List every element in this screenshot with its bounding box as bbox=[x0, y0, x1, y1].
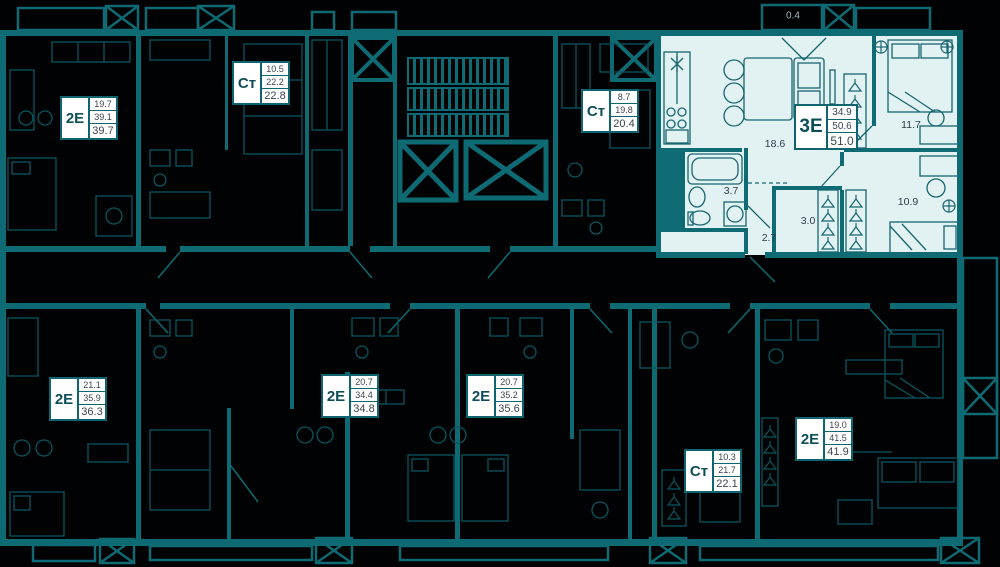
apartment-area-room: 20.7 bbox=[351, 376, 377, 389]
apartment-label-2e-top-left[interactable]: 2Е 19.7 39.1 39.7 bbox=[60, 96, 118, 140]
apartment-area-living: 22.2 bbox=[262, 76, 288, 89]
room-area-bedroom-2: 10.9 bbox=[898, 196, 918, 208]
room-area-kitchen-living: 18.6 bbox=[765, 138, 785, 150]
apartment-label-3e-highlighted[interactable]: 3Е 34.9 50.6 51.0 bbox=[794, 104, 858, 150]
apartment-area-room: 10.3 bbox=[714, 451, 740, 464]
apartment-area-room: 20.7 bbox=[496, 376, 522, 389]
apartment-area-total: 34.8 bbox=[351, 402, 377, 416]
apartment-area-total: 41.9 bbox=[825, 445, 851, 459]
room-area-balcony: 0.4 bbox=[786, 11, 800, 22]
room-area-bedroom-1: 11.7 bbox=[901, 119, 921, 131]
apartment-area-total: 39.7 bbox=[90, 124, 116, 138]
apartment-area-total: 22.8 bbox=[262, 89, 288, 103]
apartment-type: 2Е bbox=[62, 98, 90, 138]
apartment-label-2e-bottom-mid-2[interactable]: 2Е 20.7 35.2 35.6 bbox=[466, 374, 524, 418]
apartment-area-living: 35.2 bbox=[496, 389, 522, 402]
apartment-area-total: 51.0 bbox=[828, 133, 856, 148]
apartment-area-total: 22.1 bbox=[714, 477, 740, 491]
apartment-area-living: 34.4 bbox=[351, 389, 377, 402]
elevator-shafts bbox=[400, 142, 546, 200]
apartment-label-st-mid[interactable]: Ст 8.7 19.8 20.4 bbox=[581, 89, 639, 133]
room-area-wardrobe: 3.0 bbox=[801, 215, 816, 227]
apartment-type: 2Е bbox=[51, 379, 79, 419]
floor-plan-drawing bbox=[0, 0, 1000, 567]
apartment-area-total: 35.6 bbox=[496, 402, 522, 416]
apartment-area-total: 36.3 bbox=[79, 405, 105, 419]
apartment-area-room: 34.9 bbox=[828, 106, 856, 120]
apartment-type: 2Е bbox=[797, 419, 825, 459]
apartment-area-room: 10.5 bbox=[262, 63, 288, 76]
apartment-area-room: 8.7 bbox=[611, 91, 637, 104]
apartment-type: 2Е bbox=[323, 376, 351, 416]
apartment-type: 2Е bbox=[468, 376, 496, 416]
apartment-area-total: 20.4 bbox=[611, 117, 637, 131]
apartment-area-room: 19.0 bbox=[825, 419, 851, 432]
apartment-label-st-bottom[interactable]: Ст 10.3 21.7 22.1 bbox=[684, 449, 742, 493]
apartment-area-living: 35.9 bbox=[79, 392, 105, 405]
stair-core bbox=[408, 58, 508, 136]
apartment-type: Ст bbox=[234, 63, 262, 103]
floor-plan: 2Е 19.7 39.1 39.7 Ст 10.5 22.2 22.8 Ст 8… bbox=[0, 0, 1000, 567]
apartment-label-st-top[interactable]: Ст 10.5 22.2 22.8 bbox=[232, 61, 290, 105]
apartment-label-2e-bottom-left[interactable]: 2Е 21.1 35.9 36.3 bbox=[49, 377, 107, 421]
apartment-area-room: 21.1 bbox=[79, 379, 105, 392]
apartment-area-room: 19.7 bbox=[90, 98, 116, 111]
apartment-type: Ст bbox=[583, 91, 611, 131]
apartment-area-living: 50.6 bbox=[828, 120, 856, 134]
apartment-area-living: 21.7 bbox=[714, 464, 740, 477]
apartment-area-living: 39.1 bbox=[90, 111, 116, 124]
room-area-bathroom: 3.7 bbox=[724, 185, 739, 197]
room-area-hall: 2.7 bbox=[762, 232, 777, 244]
apartment-area-living: 19.8 bbox=[611, 104, 637, 117]
apartment-type: 3Е bbox=[796, 106, 828, 148]
apartment-label-2e-bottom-mid-1[interactable]: 2Е 20.7 34.4 34.8 bbox=[321, 374, 379, 418]
apartment-area-living: 41.5 bbox=[825, 432, 851, 445]
apartment-type: Ст bbox=[686, 451, 714, 491]
apartment-label-2e-bottom-right[interactable]: 2Е 19.0 41.5 41.9 bbox=[795, 417, 853, 461]
